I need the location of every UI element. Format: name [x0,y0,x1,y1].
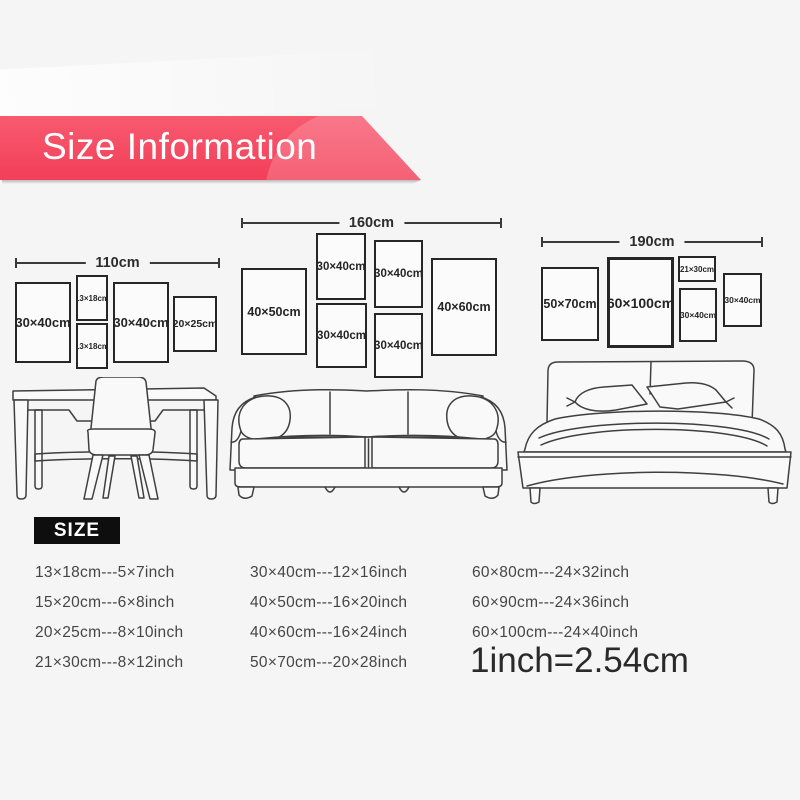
header-banner: Size Information [0,116,421,180]
size-conversion-row: 30×40cm---12×16inch [250,558,407,588]
size-conversion-row: 50×70cm---20×28inch [250,648,407,678]
size-conversion-row: 60×90cm---24×36inch [472,588,638,618]
dimension-line-190cm: 190cm [541,237,763,247]
frame-50x70cm: 50×70cm [541,267,599,341]
frame-30x40cm: 30×40cm [679,288,717,342]
frame-30x40cm: 30×40cm [723,273,762,327]
frame-40x60cm: 40×60cm [431,258,497,356]
frame-30x40cm: 30×40cm [316,303,367,368]
frame-20x25cm: 20×25cm [173,296,217,352]
frame-30x40cm: 30×40cm [316,233,366,300]
dimension-line-160cm: 160cm [241,218,502,228]
size-conversion-row: 13×18cm---5×7inch [35,558,183,588]
frame-30x40cm: 30×40cm [113,282,169,363]
sofa [230,390,507,499]
size-conversion-row: 60×80cm---24×32inch [472,558,638,588]
frame-40x50cm: 40×50cm [241,268,307,355]
bed-drawing [515,358,800,505]
inch-conversion-note: 1inch=2.54cm [470,641,689,681]
desk-and-chair-drawing [10,377,222,504]
chair [84,377,158,499]
size-conversion-row: 40×50cm---16×20inch [250,588,407,618]
frame-30x40cm: 30×40cm [15,282,71,363]
dimension-label-190cm: 190cm [619,234,684,250]
size-information-infographic: Size Information 110cm 160cm 190cm 30×40… [0,0,800,800]
size-conversion-column-1: 13×18cm---5×7inch 15×20cm---6×8inch 20×2… [35,558,183,678]
frame-30x40cm: 30×40cm [374,240,423,308]
frame-60x100cm: 60×100cm [607,257,674,348]
size-heading-badge: SIZE [34,517,120,544]
size-conversion-column-3: 60×80cm---24×32inch 60×90cm---24×36inch … [472,558,638,648]
size-conversion-row: 21×30cm---8×12inch [35,648,183,678]
size-conversion-row: 20×25cm---8×10inch [35,618,183,648]
size-conversion-column-2: 30×40cm---12×16inch 40×50cm---16×20inch … [250,558,407,678]
dimension-line-110cm: 110cm [15,258,220,268]
size-conversion-row: 15×20cm---6×8inch [35,588,183,618]
frame-30x40cm: 30×40cm [374,313,423,378]
frame-13x18cm: 13×18cm [76,323,108,369]
banner-shadow [2,180,421,184]
size-conversion-row: 40×60cm---16×24inch [250,618,407,648]
frame-21x30cm: 21×30cm [678,256,716,282]
dimension-label-160cm: 160cm [339,215,404,231]
sofa-drawing [226,384,511,505]
frame-13x18cm: 13×18cm [76,275,108,321]
page-title: Size Information [42,126,317,168]
bed [518,361,791,504]
dimension-label-110cm: 110cm [85,255,149,271]
